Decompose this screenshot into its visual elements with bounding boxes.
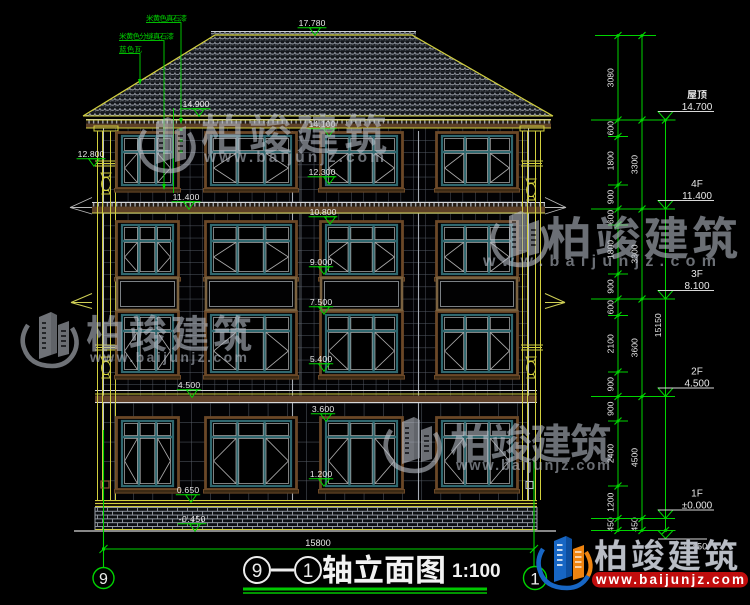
svg-text:9: 9 — [252, 561, 263, 582]
svg-text:9: 9 — [99, 571, 108, 588]
svg-text:2F: 2F — [691, 367, 703, 378]
svg-text:14.700: 14.700 — [682, 102, 713, 113]
svg-text:2100: 2100 — [606, 334, 616, 353]
svg-text:1F: 1F — [691, 489, 703, 500]
svg-text:8.100: 8.100 — [684, 281, 709, 292]
svg-text:11.400: 11.400 — [682, 191, 712, 202]
svg-text:1: 1 — [303, 561, 314, 582]
svg-text:900: 900 — [606, 377, 616, 392]
svg-text:450: 450 — [630, 517, 640, 532]
svg-text:900: 900 — [606, 279, 616, 294]
svg-text:4F: 4F — [691, 179, 703, 190]
svg-text:12.800: 12.800 — [78, 149, 105, 159]
svg-text:1.200: 1.200 — [310, 469, 333, 479]
svg-text:±0.000: ±0.000 — [682, 500, 713, 511]
svg-text:3.600: 3.600 — [312, 404, 335, 414]
svg-text:12.300: 12.300 — [309, 167, 336, 177]
svg-text:5.400: 5.400 — [310, 354, 333, 364]
svg-text:0.650: 0.650 — [177, 485, 200, 495]
svg-text:1200: 1200 — [606, 492, 616, 511]
svg-text:15150: 15150 — [653, 313, 663, 337]
svg-text:450: 450 — [606, 517, 616, 532]
svg-text:7.500: 7.500 — [310, 297, 333, 307]
svg-text:14.900: 14.900 — [183, 99, 210, 109]
svg-text:4.500: 4.500 — [178, 380, 201, 390]
svg-text:1:100: 1:100 — [452, 561, 501, 582]
svg-text:900: 900 — [606, 190, 616, 205]
svg-text:9.000: 9.000 — [310, 257, 333, 267]
svg-text:10.800: 10.800 — [310, 207, 337, 217]
svg-text:3080: 3080 — [606, 68, 616, 87]
svg-text:3600: 3600 — [630, 338, 640, 357]
svg-text:600: 600 — [606, 121, 616, 136]
svg-text:17.780: 17.780 — [299, 18, 326, 28]
svg-text:4.500: 4.500 — [684, 378, 709, 389]
svg-text:4500: 4500 — [630, 448, 640, 467]
svg-text:3300: 3300 — [630, 155, 640, 174]
svg-text:11.400: 11.400 — [173, 192, 200, 202]
svg-text:1800: 1800 — [606, 151, 616, 170]
svg-text:-0.450: -0.450 — [179, 514, 206, 524]
svg-text:900: 900 — [606, 401, 616, 416]
svg-text:15800: 15800 — [305, 538, 331, 548]
svg-text:600: 600 — [606, 300, 616, 315]
svg-text:3F: 3F — [691, 269, 703, 280]
